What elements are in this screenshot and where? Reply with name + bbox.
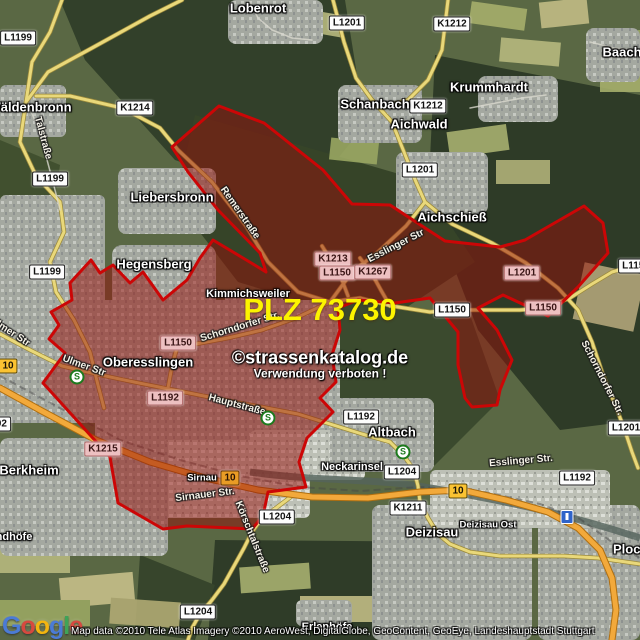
watermark-line2: Verwendung verboten ! (232, 367, 408, 381)
road-shield-k1212: K1212 (433, 17, 470, 32)
place-label-w-ldenbronn: Wäldenbronn (0, 100, 72, 115)
street-label-ulmer-str: Ulmer Str (0, 315, 32, 349)
google-logo-letter: G (2, 612, 20, 640)
road-shield-l1204: L1204 (180, 605, 216, 620)
place-label-schanbach: Schanbach (340, 97, 409, 112)
road-shield-k1213: K1213 (314, 252, 351, 267)
road-shield-l1150: L1150 (525, 301, 561, 316)
street-label-esslinger-str-: Esslinger Str. (489, 453, 554, 470)
station-icon (561, 510, 574, 524)
map-canvas[interactable]: L1199K1214L1201K1212K1212L1199L1199L1201… (0, 0, 640, 640)
google-logo-letter: o (35, 612, 49, 640)
road-shield-k1212: K1212 (409, 99, 446, 114)
place-label-plochingen: Plochingen (613, 542, 640, 557)
place-label-oberesslingen: Oberesslingen (103, 355, 193, 370)
street-label-hauptstra-e: Hauptstraße (207, 392, 266, 418)
road-shield-k1214: K1214 (116, 101, 153, 116)
sbahn-icon: S (70, 370, 85, 385)
place-label-baach: Baach (602, 45, 640, 60)
place-label-berkheim: Berkheim (0, 463, 59, 478)
road-shield-l1192: L1192 (343, 410, 379, 425)
google-logo-letter: o (20, 612, 34, 640)
street-label-talstra-e: Talstraße (32, 115, 54, 160)
road-shield-l1201: L1201 (329, 16, 365, 31)
place-label-deizisau: Deizisau (406, 525, 459, 540)
road-shield-l1201: L1201 (608, 421, 640, 436)
place-label-lobenrot: Lobenrot (230, 1, 286, 16)
street-label-sirnauer-str-: Sirnauer Str. (175, 486, 235, 504)
place-label-sirnau: Sirnau (187, 473, 217, 484)
plz-code-label: PLZ 73730 (243, 292, 396, 328)
road-shield-l1199: L1199 (32, 172, 68, 187)
place-label-aichschie-: Aichschieß (417, 210, 486, 225)
road-shield-l1150: L1150 (319, 266, 355, 281)
street-label-schorndorfer-str-: Schorndorfer Str. (578, 339, 625, 417)
watermark: ©strassenkatalog.de Verwendung verboten … (232, 348, 408, 381)
place-label-neckarinsel: Neckarinsel (321, 461, 383, 473)
place-label-hegensberg: Hegensberg (116, 257, 191, 272)
place-label-krummhardt: Krummhardt (450, 80, 528, 95)
watermark-line1: ©strassenkatalog.de (232, 348, 408, 369)
road-shield-10: 10 (448, 484, 467, 499)
road-shield-10: 10 (220, 471, 239, 486)
road-shield-l1150: L1150 (434, 303, 470, 318)
road-shield-10: 10 (0, 359, 18, 374)
road-shield-l1192: L1192 (0, 417, 11, 432)
map-attribution: Map data ©2010 Tele Atlas Imagery ©2010 … (71, 626, 637, 637)
road-shield-l1199: L1199 (29, 265, 65, 280)
place-label-altbach: Altbach (368, 425, 416, 440)
road-shield-l1192: L1192 (147, 391, 183, 406)
sbahn-icon: S (261, 411, 276, 426)
road-shield-l1204: L1204 (384, 465, 420, 480)
road-shield-l1204: L1204 (259, 510, 295, 525)
road-shield-k1215: K1215 (84, 442, 121, 457)
google-logo-letter: g (49, 612, 63, 640)
sbahn-icon: S (396, 445, 411, 460)
road-shield-l1150: L1150 (160, 336, 196, 351)
road-shield-l1192: L1192 (559, 471, 595, 486)
road-shield-l1201: L1201 (402, 163, 438, 178)
road-shield-l1199: L1199 (0, 31, 36, 46)
road-shield-l1201: L1201 (504, 266, 540, 281)
place-label-deizisau-ost: Deizisau Ost (459, 520, 516, 531)
road-shield-l1150: L1150 (618, 259, 640, 274)
road-shield-k1267: K1267 (354, 265, 391, 280)
place-label-liebersbronn: Liebersbronn (130, 190, 213, 205)
road-shield-k1211: K1211 (390, 501, 427, 516)
place-label-ndh-fe: ndhöfe (0, 531, 32, 543)
street-label-esslinger-str: Esslinger Str (366, 227, 426, 265)
street-label-remerstra-e: Remerstraße (218, 185, 262, 241)
place-label-aichwald: Aichwald (390, 117, 447, 132)
